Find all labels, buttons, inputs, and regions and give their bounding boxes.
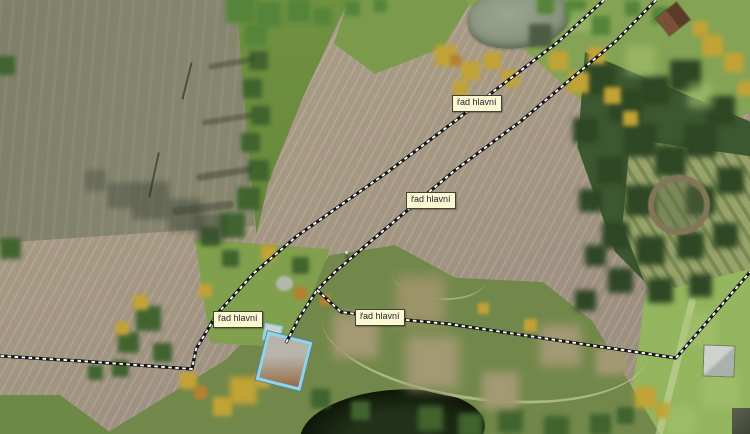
autumn-orange-dots <box>0 0 1 1</box>
pump-station <box>256 331 313 391</box>
figure-in-field <box>345 251 348 254</box>
olive-meadow-mow-lines <box>0 0 750 434</box>
meadow-topright <box>0 0 750 434</box>
orchard-row-stripes <box>0 0 750 434</box>
grass-band-under-pond <box>0 0 750 434</box>
pipeline-network-overlay[interactable] <box>0 0 750 434</box>
lawn-path <box>655 297 697 434</box>
pole-shadow <box>148 152 160 197</box>
field-plow-striations <box>0 0 750 434</box>
map-viewport[interactable]: řad hlavnířad hlavnířad hlavnířad hlavní <box>0 0 750 434</box>
orchard-rows <box>0 0 750 434</box>
lawn-bottomright <box>0 0 750 434</box>
olive-field-tree-shadows <box>0 0 1 1</box>
autumn-yellow-dots <box>0 0 1 1</box>
tree-row-dots <box>0 0 1 1</box>
orthophoto-scene <box>0 0 750 434</box>
pipeline-main-northeast-a[interactable] <box>0 0 604 369</box>
trail-curve-long <box>313 248 657 420</box>
trail-curve-short <box>390 249 488 304</box>
pole-shadow <box>181 62 192 99</box>
pipeline-label-3[interactable]: řad hlavní <box>213 311 263 328</box>
pipeline-main-northeast-b[interactable] <box>286 0 656 343</box>
scrub-bare-patches <box>0 0 1 1</box>
forest-ring-clearing <box>648 175 710 235</box>
green-corner-bottomleft <box>0 0 750 434</box>
pipeline-label-1[interactable]: řad hlavní <box>452 95 502 112</box>
grey-bush <box>276 276 293 291</box>
tree-shadow-streak <box>202 112 254 126</box>
tree-shadow-streak <box>208 56 256 70</box>
shed-grey <box>703 345 734 376</box>
light-grass-patches <box>0 0 1 1</box>
forest-dark <box>0 0 750 434</box>
scrub-meadow <box>0 0 750 434</box>
bright-tree-dots <box>0 0 1 1</box>
house-roof-topright <box>656 2 690 35</box>
shed-dark-corner <box>732 408 750 434</box>
pump-station-annex <box>262 323 283 343</box>
tree-shadow-streak <box>172 200 235 215</box>
pond <box>464 0 573 55</box>
field-olive-meadow <box>0 0 750 434</box>
pump-station-pad <box>256 331 313 391</box>
grass-strip <box>0 0 750 434</box>
junction-green <box>0 0 750 434</box>
tree-shadow-streak <box>196 166 252 182</box>
pipeline-main-northeast-b[interactable] <box>286 0 656 343</box>
field-plowed-base <box>0 0 750 434</box>
pipeline-label-4[interactable]: řad hlavní <box>355 309 405 326</box>
pipeline-label-2[interactable]: řad hlavní <box>406 192 456 209</box>
forest-canopy-dots <box>0 0 1 1</box>
pipeline-main-northeast-a[interactable] <box>0 0 604 369</box>
pond-dark-bottom <box>297 382 489 434</box>
